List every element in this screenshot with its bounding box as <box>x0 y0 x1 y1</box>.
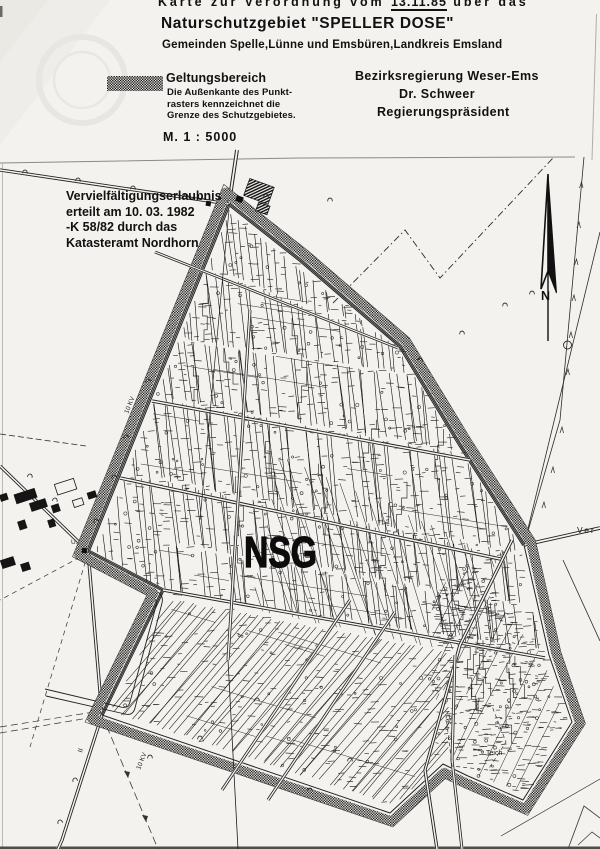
svg-text:Teich: Teich <box>486 750 502 757</box>
svg-text:Ver: Ver <box>577 525 596 535</box>
svg-text:NSG: NSG <box>244 528 317 577</box>
svg-text:N: N <box>541 289 550 303</box>
svg-text:U.: U. <box>71 539 78 546</box>
